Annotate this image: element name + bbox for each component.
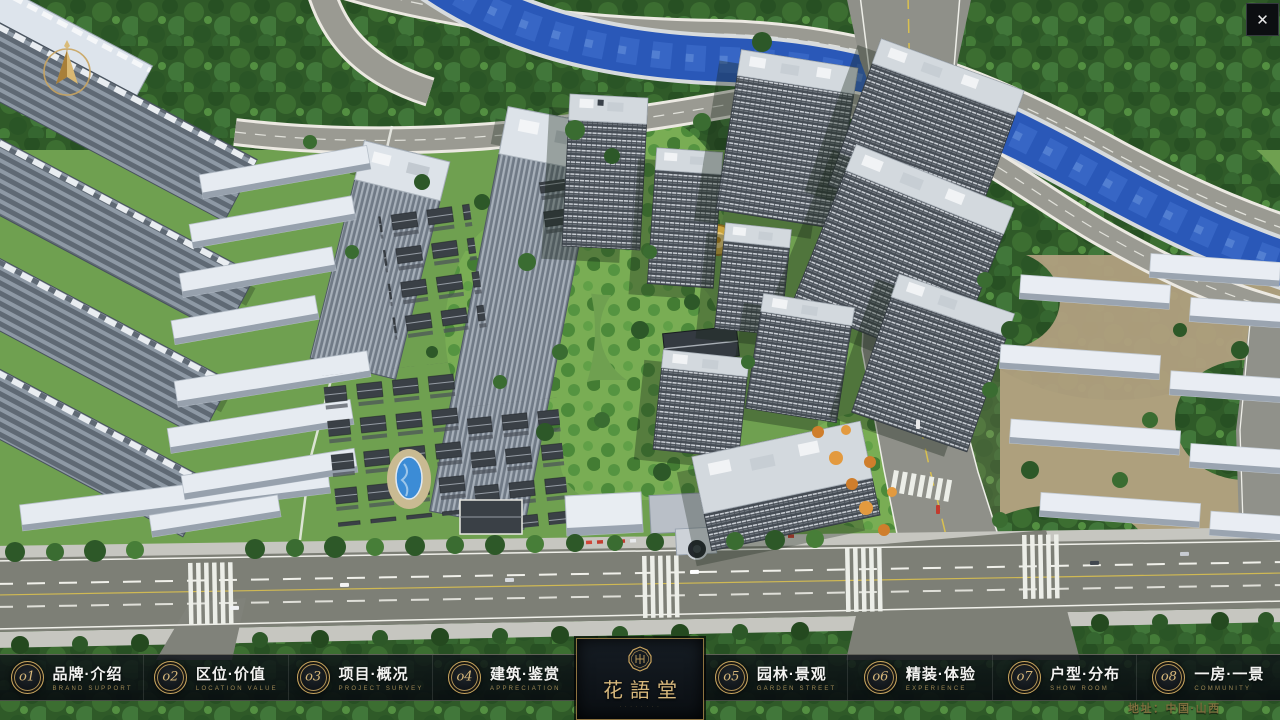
nav-item-labels: 品牌·介绍 BRAND SUPPORT <box>53 663 133 692</box>
nav-item-label-en: SHOW ROOM <box>1050 686 1109 692</box>
nav-number-badge: o6 <box>864 661 897 694</box>
nav-item-garden[interactable]: o5 园林·景观 GARDEN STREET <box>704 655 847 700</box>
compass-icon <box>34 34 100 104</box>
nav-item-views[interactable]: o8 一房·一景 COMMUNITY <box>1136 655 1280 700</box>
nav-item-label-cn: 一房·一景 <box>1194 663 1264 684</box>
nav-item-brand[interactable]: o1 品牌·介绍 BRAND SUPPORT <box>0 655 143 700</box>
nav-item-label-cn: 精装·体验 <box>906 663 976 684</box>
nav-item-labels: 建筑·鉴赏 APPRECIATION <box>490 663 561 692</box>
nav-item-labels: 户型·分布 SHOW ROOM <box>1050 663 1120 692</box>
nav-item-label-cn: 项目·概况 <box>339 663 409 684</box>
site-address: 地址：中国·山西 <box>1128 700 1221 716</box>
nav-number-badge: o2 <box>154 661 187 694</box>
nav-item-labels: 园林·景观 GARDEN STREET <box>757 663 837 692</box>
swimming-pool <box>387 449 431 509</box>
nav-group-left: o1 品牌·介绍 BRAND SUPPORT o2 区位·价值 LOCATION… <box>0 655 576 700</box>
nav-item-number: o7 <box>1017 670 1033 685</box>
nav-item-number: o3 <box>305 670 321 685</box>
close-button[interactable]: ✕ <box>1246 3 1279 36</box>
nav-item-labels: 精装·体验 EXPERIENCE <box>906 663 976 692</box>
nav-item-label-cn: 区位·价值 <box>196 663 266 684</box>
seal-icon <box>628 646 652 672</box>
nav-item-floorplan[interactable]: o7 户型·分布 SHOW ROOM <box>992 655 1136 700</box>
nav-number-badge: o1 <box>11 661 44 694</box>
project-logo-subtext: · · · · · · · · <box>620 705 660 709</box>
bottom-navigation-bar: o1 品牌·介绍 BRAND SUPPORT o2 区位·价值 LOCATION… <box>0 654 1280 701</box>
nav-item-number: o1 <box>19 670 35 685</box>
nav-item-labels: 项目·概况 PROJECT SURVEY <box>339 663 424 692</box>
nav-item-label-cn: 建筑·鉴赏 <box>490 663 560 684</box>
nav-item-label-cn: 品牌·介绍 <box>53 663 123 684</box>
nav-number-badge: o3 <box>297 661 330 694</box>
nav-number-badge: o7 <box>1008 661 1041 694</box>
project-logo-title: 花語堂 <box>596 674 684 703</box>
nav-item-number: o2 <box>162 670 178 685</box>
nav-item-number: o4 <box>456 670 472 685</box>
nav-item-labels: 一房·一景 COMMUNITY <box>1194 663 1264 692</box>
nav-number-badge: o4 <box>448 661 481 694</box>
nav-item-number: o8 <box>1161 670 1177 685</box>
nav-item-label-en: GARDEN STREET <box>757 686 837 692</box>
nav-item-label-en: LOCATION VALUE <box>196 686 278 692</box>
nav-item-interior[interactable]: o6 精装·体验 EXPERIENCE <box>847 655 991 700</box>
close-icon: ✕ <box>1256 11 1269 29</box>
project-logo-panel: 花語堂 · · · · · · · · <box>576 638 704 720</box>
nav-item-location[interactable]: o2 区位·价值 LOCATION VALUE <box>143 655 287 700</box>
nav-item-number: o5 <box>723 670 739 685</box>
nav-item-label-en: COMMUNITY <box>1194 686 1251 692</box>
nav-number-badge: o8 <box>1152 661 1185 694</box>
nav-item-project[interactable]: o3 项目·概况 PROJECT SURVEY <box>288 655 432 700</box>
nav-item-label-cn: 户型·分布 <box>1050 663 1120 684</box>
nav-item-label-cn: 园林·景观 <box>757 663 827 684</box>
garden-courtyard <box>460 500 522 534</box>
nav-item-label-en: BRAND SUPPORT <box>53 686 133 692</box>
sales-presentation-window: ✕ o1 品牌·介绍 BRAND SUPPORT o2 区位·价值 LOCATI… <box>0 0 1280 720</box>
nav-item-number: o6 <box>872 670 888 685</box>
nav-number-badge: o5 <box>715 661 748 694</box>
nav-item-labels: 区位·价值 LOCATION VALUE <box>196 663 278 692</box>
nav-group-right: o5 园林·景观 GARDEN STREET o6 精装·体验 EXPERIEN… <box>704 655 1280 700</box>
nav-item-architecture[interactable]: o4 建筑·鉴赏 APPRECIATION <box>432 655 576 700</box>
nav-item-label-en: APPRECIATION <box>490 686 561 692</box>
masterplan-render <box>0 0 1280 720</box>
nav-item-label-en: PROJECT SURVEY <box>339 686 424 692</box>
nav-item-label-en: EXPERIENCE <box>906 686 967 692</box>
